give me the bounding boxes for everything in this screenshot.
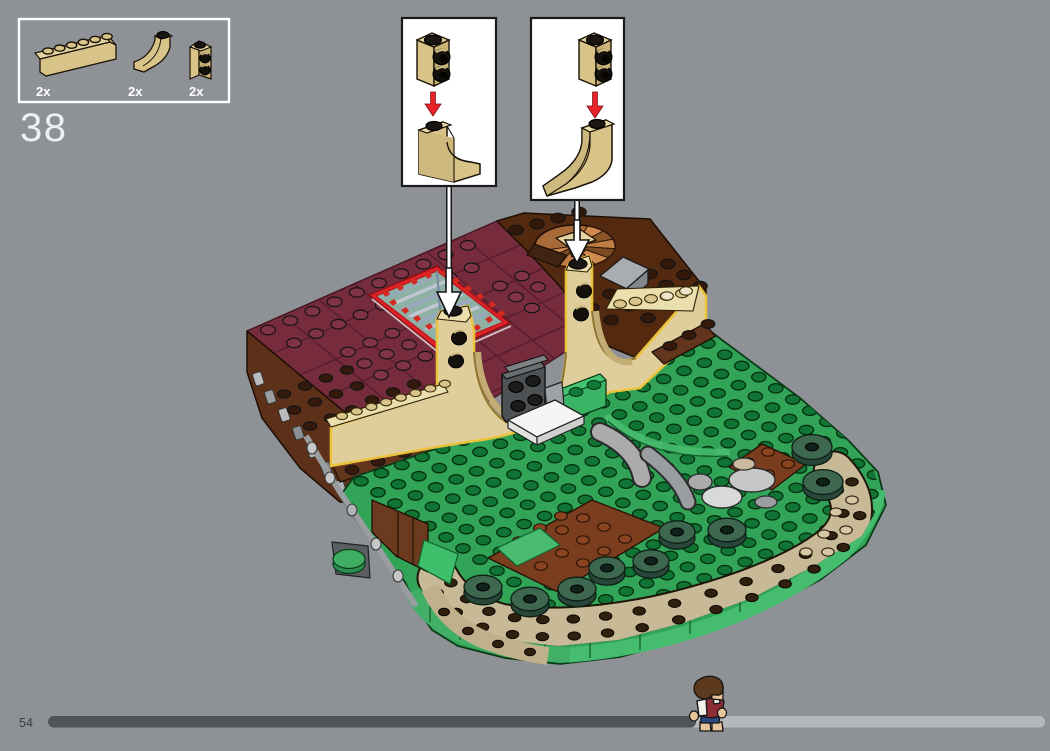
svg-text:2x: 2x xyxy=(128,84,143,99)
svg-text:54: 54 xyxy=(19,716,33,730)
svg-text:2x: 2x xyxy=(36,84,51,99)
svg-text:2x: 2x xyxy=(189,84,204,99)
svg-text:38: 38 xyxy=(20,106,68,150)
